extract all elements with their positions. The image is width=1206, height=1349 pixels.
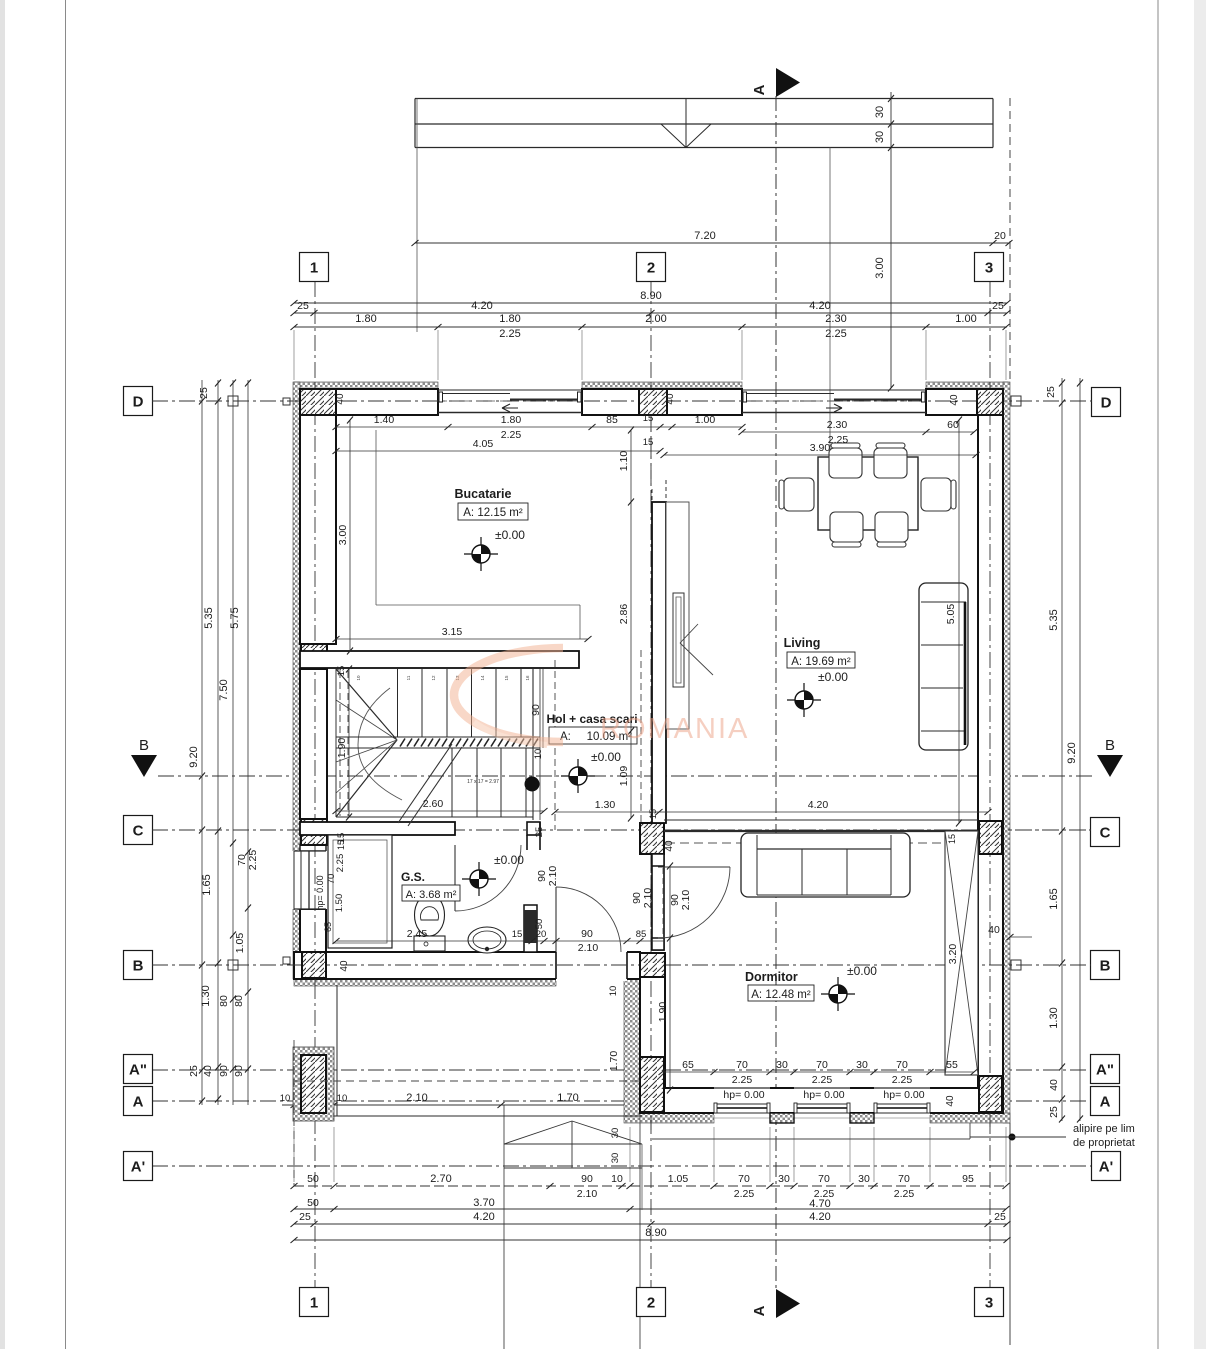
svg-text:2.10: 2.10 <box>578 942 599 954</box>
svg-text:hp= 0.00: hp= 0.00 <box>723 1089 764 1101</box>
svg-text:2.25: 2.25 <box>335 854 346 873</box>
svg-text:8.90: 8.90 <box>645 1227 666 1239</box>
svg-text:25: 25 <box>1048 1106 1060 1118</box>
svg-text:70: 70 <box>818 1173 830 1185</box>
svg-text:70: 70 <box>736 1059 748 1071</box>
svg-text:70: 70 <box>898 1173 910 1185</box>
svg-text:90: 90 <box>581 928 593 940</box>
svg-text:alipire pe lim: alipire pe lim <box>1073 1123 1135 1135</box>
svg-text:A': A' <box>1099 1159 1113 1176</box>
svg-text:7.20: 7.20 <box>694 230 715 242</box>
svg-text:A': A' <box>131 1159 145 1176</box>
svg-text:2.00: 2.00 <box>645 313 666 325</box>
svg-text:12: 12 <box>431 675 436 681</box>
svg-text:2.25: 2.25 <box>501 429 522 441</box>
svg-text:15: 15 <box>336 666 347 677</box>
svg-text:1.30: 1.30 <box>595 799 616 811</box>
svg-text:8.90: 8.90 <box>640 290 661 302</box>
svg-text:40: 40 <box>988 924 1000 936</box>
svg-text:de proprietat: de proprietat <box>1073 1137 1135 1149</box>
svg-text:25: 25 <box>198 387 210 399</box>
svg-text:15: 15 <box>504 675 509 681</box>
svg-text:B: B <box>1100 958 1111 975</box>
svg-text:10: 10 <box>608 986 619 997</box>
svg-text:1.50: 1.50 <box>334 894 345 913</box>
svg-text:2.10: 2.10 <box>680 890 692 911</box>
svg-text:1.30: 1.30 <box>200 985 212 1006</box>
svg-text:±0.00: ±0.00 <box>591 750 621 764</box>
svg-text:17 x 17 = 2.97: 17 x 17 = 2.97 <box>467 779 499 785</box>
svg-text:40: 40 <box>664 840 675 852</box>
svg-text:1.90: 1.90 <box>336 738 348 759</box>
svg-text:40: 40 <box>665 393 676 405</box>
svg-text:D: D <box>133 394 144 411</box>
svg-text:70: 70 <box>326 874 337 885</box>
svg-text:7.50: 7.50 <box>218 679 230 700</box>
svg-text:30: 30 <box>874 106 886 118</box>
svg-text:1.09: 1.09 <box>618 766 630 787</box>
svg-text:50: 50 <box>534 919 545 930</box>
svg-text:±0.00: ±0.00 <box>847 964 877 978</box>
svg-text:15: 15 <box>648 809 658 819</box>
svg-text:Living: Living <box>784 636 821 650</box>
svg-text:50: 50 <box>307 1197 319 1209</box>
svg-text:30: 30 <box>856 1059 868 1071</box>
svg-text:1.05: 1.05 <box>234 933 246 954</box>
svg-text:C: C <box>1100 825 1111 842</box>
svg-text:4.20: 4.20 <box>473 1211 494 1223</box>
svg-text:2.25: 2.25 <box>499 328 520 340</box>
svg-text:Bucatarie: Bucatarie <box>455 487 512 501</box>
svg-text:1.70: 1.70 <box>557 1092 578 1104</box>
svg-text:2.30: 2.30 <box>825 313 846 325</box>
svg-text:30: 30 <box>610 1153 621 1164</box>
svg-text:A: 19.69 m²: A: 19.69 m² <box>791 656 851 668</box>
svg-text:2.25: 2.25 <box>247 850 259 871</box>
svg-text:25: 25 <box>188 1065 200 1077</box>
svg-text:B: B <box>133 958 144 975</box>
svg-text:1.65: 1.65 <box>201 874 213 895</box>
svg-text:hp= 0.00: hp= 0.00 <box>315 875 325 910</box>
svg-text:A": A" <box>129 1062 147 1079</box>
svg-text:5.75: 5.75 <box>229 607 241 628</box>
svg-text:80: 80 <box>218 995 230 1007</box>
svg-text:3.00: 3.00 <box>337 525 349 546</box>
svg-text:14: 14 <box>480 675 485 681</box>
svg-text:85: 85 <box>606 414 618 426</box>
svg-text:1: 1 <box>310 260 318 277</box>
svg-text:90: 90 <box>581 1173 593 1185</box>
svg-text:25: 25 <box>994 1211 1006 1223</box>
svg-text:15: 15 <box>512 929 523 940</box>
svg-text:15: 15 <box>947 834 957 844</box>
svg-text:2.25: 2.25 <box>892 1074 913 1086</box>
svg-text:A: 12.48 m²: A: 12.48 m² <box>751 989 811 1001</box>
svg-text:25: 25 <box>992 300 1004 312</box>
svg-text:1.80: 1.80 <box>501 414 522 426</box>
svg-text:65: 65 <box>323 922 333 932</box>
svg-text:1: 1 <box>310 1295 318 1312</box>
svg-text:2.10: 2.10 <box>642 888 654 909</box>
svg-text:2.10: 2.10 <box>577 1188 598 1200</box>
svg-text:30: 30 <box>778 1173 790 1185</box>
svg-text:C: C <box>133 823 144 840</box>
svg-text:2.45: 2.45 <box>407 928 428 940</box>
svg-text:70: 70 <box>816 1059 828 1071</box>
svg-text:1.90: 1.90 <box>657 1002 669 1023</box>
svg-text:10: 10 <box>280 1093 291 1104</box>
svg-text:50: 50 <box>307 1173 319 1185</box>
svg-text:10: 10 <box>356 675 361 681</box>
svg-text:2.25: 2.25 <box>732 1074 753 1086</box>
svg-text:A: A <box>1100 1094 1111 1111</box>
svg-text:40: 40 <box>945 1095 956 1107</box>
svg-text:20: 20 <box>994 230 1006 242</box>
svg-text:B: B <box>1105 737 1115 754</box>
svg-text:65: 65 <box>682 1059 694 1071</box>
svg-text:5.35: 5.35 <box>203 607 215 628</box>
svg-text:25: 25 <box>297 300 309 312</box>
svg-text:9.20: 9.20 <box>1066 742 1078 763</box>
svg-text:ROMANIA: ROMANIA <box>600 713 749 745</box>
svg-text:4.20: 4.20 <box>809 1211 830 1223</box>
svg-text:2.25: 2.25 <box>812 1074 833 1086</box>
svg-text:2.10: 2.10 <box>547 866 559 887</box>
svg-text:3: 3 <box>985 260 993 277</box>
svg-text:25: 25 <box>1045 386 1057 398</box>
svg-text:4.70: 4.70 <box>809 1198 830 1210</box>
svg-text:1.65: 1.65 <box>1048 888 1060 909</box>
svg-text:1.00: 1.00 <box>955 313 976 325</box>
svg-text:30: 30 <box>776 1059 788 1071</box>
svg-text:2: 2 <box>647 1295 655 1312</box>
svg-text:15: 15 <box>643 413 654 424</box>
svg-text:4.20: 4.20 <box>808 799 829 811</box>
svg-text:60: 60 <box>947 419 959 431</box>
svg-text:A: 12.15 m²: A: 12.15 m² <box>463 507 523 519</box>
svg-text:2.25: 2.25 <box>894 1188 915 1200</box>
svg-text:55: 55 <box>946 1059 958 1071</box>
svg-text:1.30: 1.30 <box>1048 1007 1060 1028</box>
svg-text:hp= 0.00: hp= 0.00 <box>883 1089 924 1101</box>
svg-text:3.15: 3.15 <box>442 626 463 638</box>
svg-text:A: A <box>751 1305 768 1316</box>
svg-text:3: 3 <box>985 1295 993 1312</box>
svg-text:1.80: 1.80 <box>355 313 376 325</box>
svg-text:9.20: 9.20 <box>188 746 200 767</box>
svg-text:±0.00: ±0.00 <box>818 670 848 684</box>
svg-text:A": A" <box>1096 1062 1114 1079</box>
svg-text:30: 30 <box>610 1128 621 1139</box>
svg-text:4.20: 4.20 <box>809 300 830 312</box>
svg-text:90: 90 <box>233 1065 245 1077</box>
svg-text:4.05: 4.05 <box>473 438 494 450</box>
svg-text:2: 2 <box>647 260 655 277</box>
svg-text:40: 40 <box>339 960 350 972</box>
svg-text:hp= 0.00: hp= 0.00 <box>803 1089 844 1101</box>
svg-text:A: A <box>751 84 768 95</box>
svg-text:40: 40 <box>949 394 960 406</box>
svg-text:2.70: 2.70 <box>430 1173 451 1185</box>
svg-text:40: 40 <box>1048 1079 1060 1091</box>
svg-text:G.S.: G.S. <box>401 870 425 884</box>
svg-text:80: 80 <box>233 995 245 1007</box>
svg-text:15: 15 <box>643 437 654 448</box>
svg-text:10: 10 <box>611 1173 623 1185</box>
svg-text:70: 70 <box>896 1059 908 1071</box>
svg-text:1.70: 1.70 <box>608 1051 620 1072</box>
svg-text:95: 95 <box>962 1173 974 1185</box>
svg-text:2.25: 2.25 <box>825 328 846 340</box>
svg-text:5.35: 5.35 <box>1048 609 1060 630</box>
svg-text:2.25: 2.25 <box>828 434 849 446</box>
svg-text:D: D <box>1101 395 1112 412</box>
svg-text:B: B <box>139 737 149 754</box>
svg-text:1.00: 1.00 <box>695 414 716 426</box>
svg-text:16: 16 <box>525 675 530 681</box>
svg-text:10: 10 <box>337 1093 348 1104</box>
svg-text:11: 11 <box>406 675 411 680</box>
svg-text:3.70: 3.70 <box>473 1197 494 1209</box>
svg-text:20: 20 <box>536 929 547 940</box>
svg-text:A: 3.68 m²: A: 3.68 m² <box>406 889 457 901</box>
svg-text:25: 25 <box>299 1211 311 1223</box>
svg-text:3.20: 3.20 <box>947 944 959 965</box>
svg-text:A: A <box>133 1094 144 1111</box>
svg-text:70: 70 <box>738 1173 750 1185</box>
svg-text:40: 40 <box>335 393 346 405</box>
svg-text:4.20: 4.20 <box>471 300 492 312</box>
svg-text:Dormitor: Dormitor <box>745 970 798 984</box>
svg-text:1.80: 1.80 <box>499 313 520 325</box>
svg-text:3.90: 3.90 <box>810 442 831 454</box>
svg-text:90: 90 <box>218 1065 230 1077</box>
svg-text:±0.00: ±0.00 <box>495 528 525 542</box>
svg-text:30: 30 <box>874 131 886 143</box>
svg-text:2.30: 2.30 <box>827 419 848 431</box>
svg-text:±0.00: ±0.00 <box>494 853 524 867</box>
svg-text:2.60: 2.60 <box>423 798 444 810</box>
svg-text:2.10: 2.10 <box>406 1092 427 1104</box>
svg-text:85: 85 <box>636 929 647 940</box>
svg-text:10: 10 <box>533 749 544 760</box>
svg-text:5.05: 5.05 <box>945 604 957 625</box>
svg-text:2.25: 2.25 <box>734 1188 755 1200</box>
svg-text:90: 90 <box>530 704 542 716</box>
svg-text:3.00: 3.00 <box>874 257 886 278</box>
svg-text:1.10: 1.10 <box>618 451 630 472</box>
svg-text:40: 40 <box>202 1065 214 1077</box>
svg-text:25: 25 <box>534 827 545 838</box>
svg-text:30: 30 <box>858 1173 870 1185</box>
svg-text:1.05: 1.05 <box>668 1173 689 1185</box>
svg-text:1.40: 1.40 <box>374 414 395 426</box>
svg-text:15: 15 <box>336 840 346 850</box>
svg-text:2.86: 2.86 <box>618 604 630 625</box>
